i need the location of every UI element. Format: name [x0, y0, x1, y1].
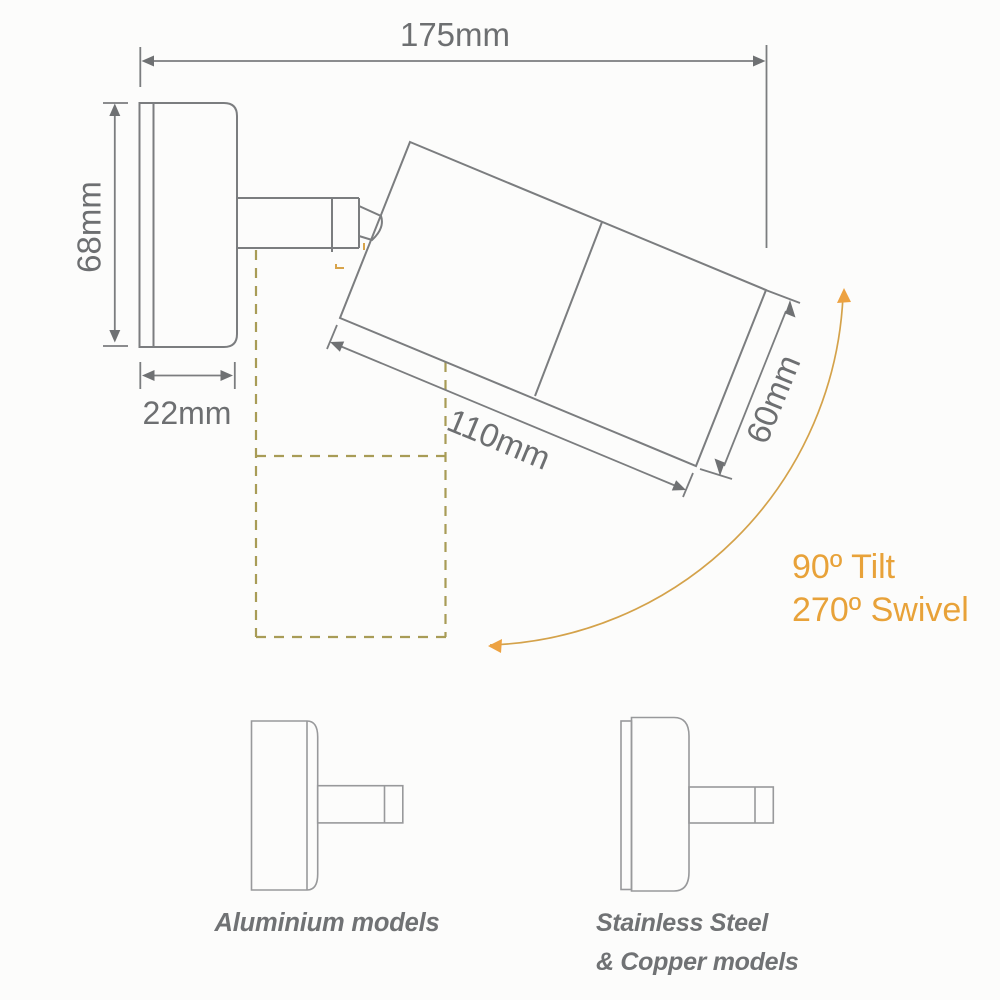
svg-text:175mm: 175mm [400, 16, 510, 53]
svg-text:90º Tilt: 90º Tilt [792, 548, 896, 586]
svg-text:270º Swivel: 270º Swivel [792, 591, 969, 629]
svg-text:Stainless Steel: Stainless Steel [596, 909, 769, 937]
svg-text:Aluminium models: Aluminium models [214, 909, 440, 937]
svg-text:68mm: 68mm [71, 181, 108, 273]
svg-text:& Copper models: & Copper models [596, 948, 799, 976]
svg-text:22mm: 22mm [143, 395, 232, 431]
